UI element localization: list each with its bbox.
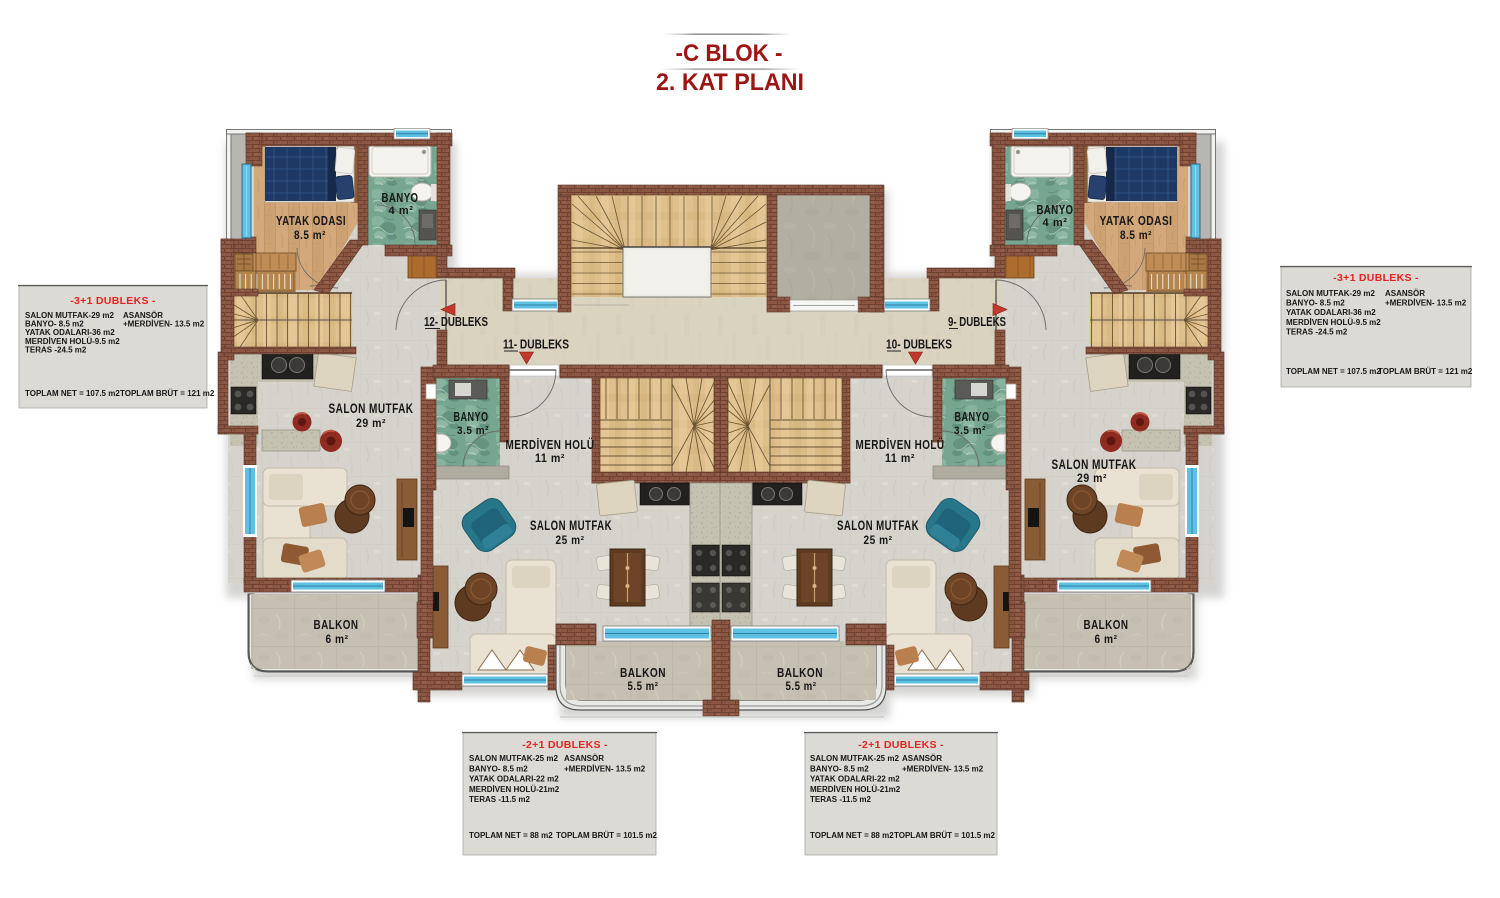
svg-text:YATAK ODASI: YATAK ODASI [1100,213,1173,228]
svg-text:MERDİVEN HOLÜ-21m2: MERDİVEN HOLÜ-21m2 [469,785,560,794]
svg-text:-3+1 DUBLEKS -: -3+1 DUBLEKS - [70,295,156,307]
svg-text:12- DUBLEKS: 12- DUBLEKS [424,314,488,329]
svg-text:TERAS -11.5 m2: TERAS -11.5 m2 [469,795,530,804]
svg-text:TOPLAM NET = 88 m2: TOPLAM NET = 88 m2 [810,831,894,840]
svg-text:6 m²: 6 m² [1095,634,1118,646]
svg-text:BALKON: BALKON [1084,617,1129,632]
svg-text:+MERDİVEN- 13.5 m2: +MERDİVEN- 13.5 m2 [902,764,984,773]
svg-text:TOPLAM NET = 88 m2: TOPLAM NET = 88 m2 [469,831,553,840]
svg-text:11 m²: 11 m² [535,453,565,465]
svg-text:8.5 m²: 8.5 m² [1120,230,1152,242]
svg-text:MERDİVEN HOLÜ: MERDİVEN HOLÜ [506,437,595,452]
svg-text:25 m²: 25 m² [864,535,893,547]
svg-text:25 m²: 25 m² [556,535,585,547]
svg-text:10- DUBLEKS: 10- DUBLEKS [886,337,952,352]
svg-text:29 m²: 29 m² [1077,473,1107,485]
svg-text:TERAS -11.5 m2: TERAS -11.5 m2 [810,795,871,804]
svg-text:BANYO: BANYO [382,190,419,205]
svg-text:+MERDİVEN- 13.5 m2: +MERDİVEN- 13.5 m2 [123,320,205,329]
svg-text:9- DUBLEKS: 9- DUBLEKS [948,314,1006,329]
svg-text:YATAK ODALARI-22 m2: YATAK ODALARI-22 m2 [810,775,900,784]
svg-text:TOPLAM BRÜT = 101.5 m2: TOPLAM BRÜT = 101.5 m2 [894,831,996,840]
svg-text:SALON MUTFAK: SALON MUTFAK [329,401,414,416]
svg-text:BANYO: BANYO [1037,202,1074,217]
svg-text:6 m²: 6 m² [326,634,349,646]
svg-text:TOPLAM NET = 107.5 m2: TOPLAM NET = 107.5 m2 [1286,367,1381,376]
svg-text:TOPLAM BRÜT = 121 m2: TOPLAM BRÜT = 121 m2 [1378,367,1473,376]
svg-text:-C BLOK -: -C BLOK - [676,40,783,67]
svg-text:BALKON: BALKON [777,665,823,680]
svg-text:BANYO: BANYO [454,410,489,424]
svg-text:SALON MUTFAK-29 m2: SALON MUTFAK-29 m2 [1286,289,1375,298]
svg-text:-3+1 DUBLEKS -: -3+1 DUBLEKS - [1333,272,1419,284]
svg-text:3.5 m²: 3.5 m² [954,425,986,437]
svg-text:-2+1 DUBLEKS -: -2+1 DUBLEKS - [858,739,944,751]
svg-text:BANYO- 8.5 m2: BANYO- 8.5 m2 [469,764,528,773]
svg-text:BANYO- 8.5 m2: BANYO- 8.5 m2 [1286,299,1345,308]
svg-text:ASANSÖR: ASANSÖR [902,754,942,763]
svg-text:29 m²: 29 m² [356,418,386,430]
svg-text:YATAK ODALARI-22 m2: YATAK ODALARI-22 m2 [469,775,559,784]
svg-text:TOPLAM NET = 107.5 m2: TOPLAM NET = 107.5 m2 [25,389,120,398]
svg-text:+MERDİVEN- 13.5 m2: +MERDİVEN- 13.5 m2 [564,764,646,773]
svg-text:2. KAT PLANI: 2. KAT PLANI [656,69,804,96]
svg-text:SALON MUTFAK-25 m2: SALON MUTFAK-25 m2 [469,754,558,763]
svg-text:5.5 m²: 5.5 m² [628,681,659,693]
svg-text:11 m²: 11 m² [885,453,915,465]
svg-text:4 m²: 4 m² [1043,217,1068,229]
svg-text:YATAK ODASI: YATAK ODASI [276,213,346,228]
svg-text:ASANSÖR: ASANSÖR [564,754,604,763]
svg-text:MERDİVEN HOLÜ: MERDİVEN HOLÜ [856,437,945,452]
svg-text:BALKON: BALKON [620,665,666,680]
svg-text:+MERDİVEN- 13.5 m2: +MERDİVEN- 13.5 m2 [1385,299,1467,308]
svg-text:SALON MUTFAK-25 m2: SALON MUTFAK-25 m2 [810,754,899,763]
svg-text:5.5 m²: 5.5 m² [786,681,817,693]
svg-text:MERDİVEN HOLÜ-9.5 m2: MERDİVEN HOLÜ-9.5 m2 [1286,318,1381,327]
svg-text:11- DUBLEKS: 11- DUBLEKS [503,337,569,352]
svg-text:SALON MUTFAK: SALON MUTFAK [530,518,612,533]
svg-text:TERAS -24.5 m2: TERAS -24.5 m2 [1286,327,1348,336]
svg-text:TOPLAM BRÜT = 121 m2: TOPLAM BRÜT = 121 m2 [120,389,215,398]
svg-text:TOPLAM BRÜT = 101.5 m2: TOPLAM BRÜT = 101.5 m2 [556,831,658,840]
svg-text:ASANSÖR: ASANSÖR [1385,289,1425,298]
svg-text:-2+1 DUBLEKS -: -2+1 DUBLEKS - [522,739,608,751]
svg-text:SALON MUTFAK: SALON MUTFAK [837,518,919,533]
svg-text:YATAK ODALARI-36 m2: YATAK ODALARI-36 m2 [1286,308,1376,317]
svg-text:TERAS -24.5 m2: TERAS -24.5 m2 [25,345,87,354]
svg-text:BANYO- 8.5 m2: BANYO- 8.5 m2 [810,764,869,773]
svg-text:4 m²: 4 m² [389,205,414,217]
svg-text:BANYO: BANYO [955,410,990,424]
svg-text:3.5 m²: 3.5 m² [457,425,489,437]
svg-text:MERDİVEN HOLÜ-21m2: MERDİVEN HOLÜ-21m2 [810,785,901,794]
svg-text:BALKON: BALKON [314,617,359,632]
svg-text:8.5 m²: 8.5 m² [294,230,326,242]
svg-text:SALON MUTFAK: SALON MUTFAK [1052,457,1137,472]
